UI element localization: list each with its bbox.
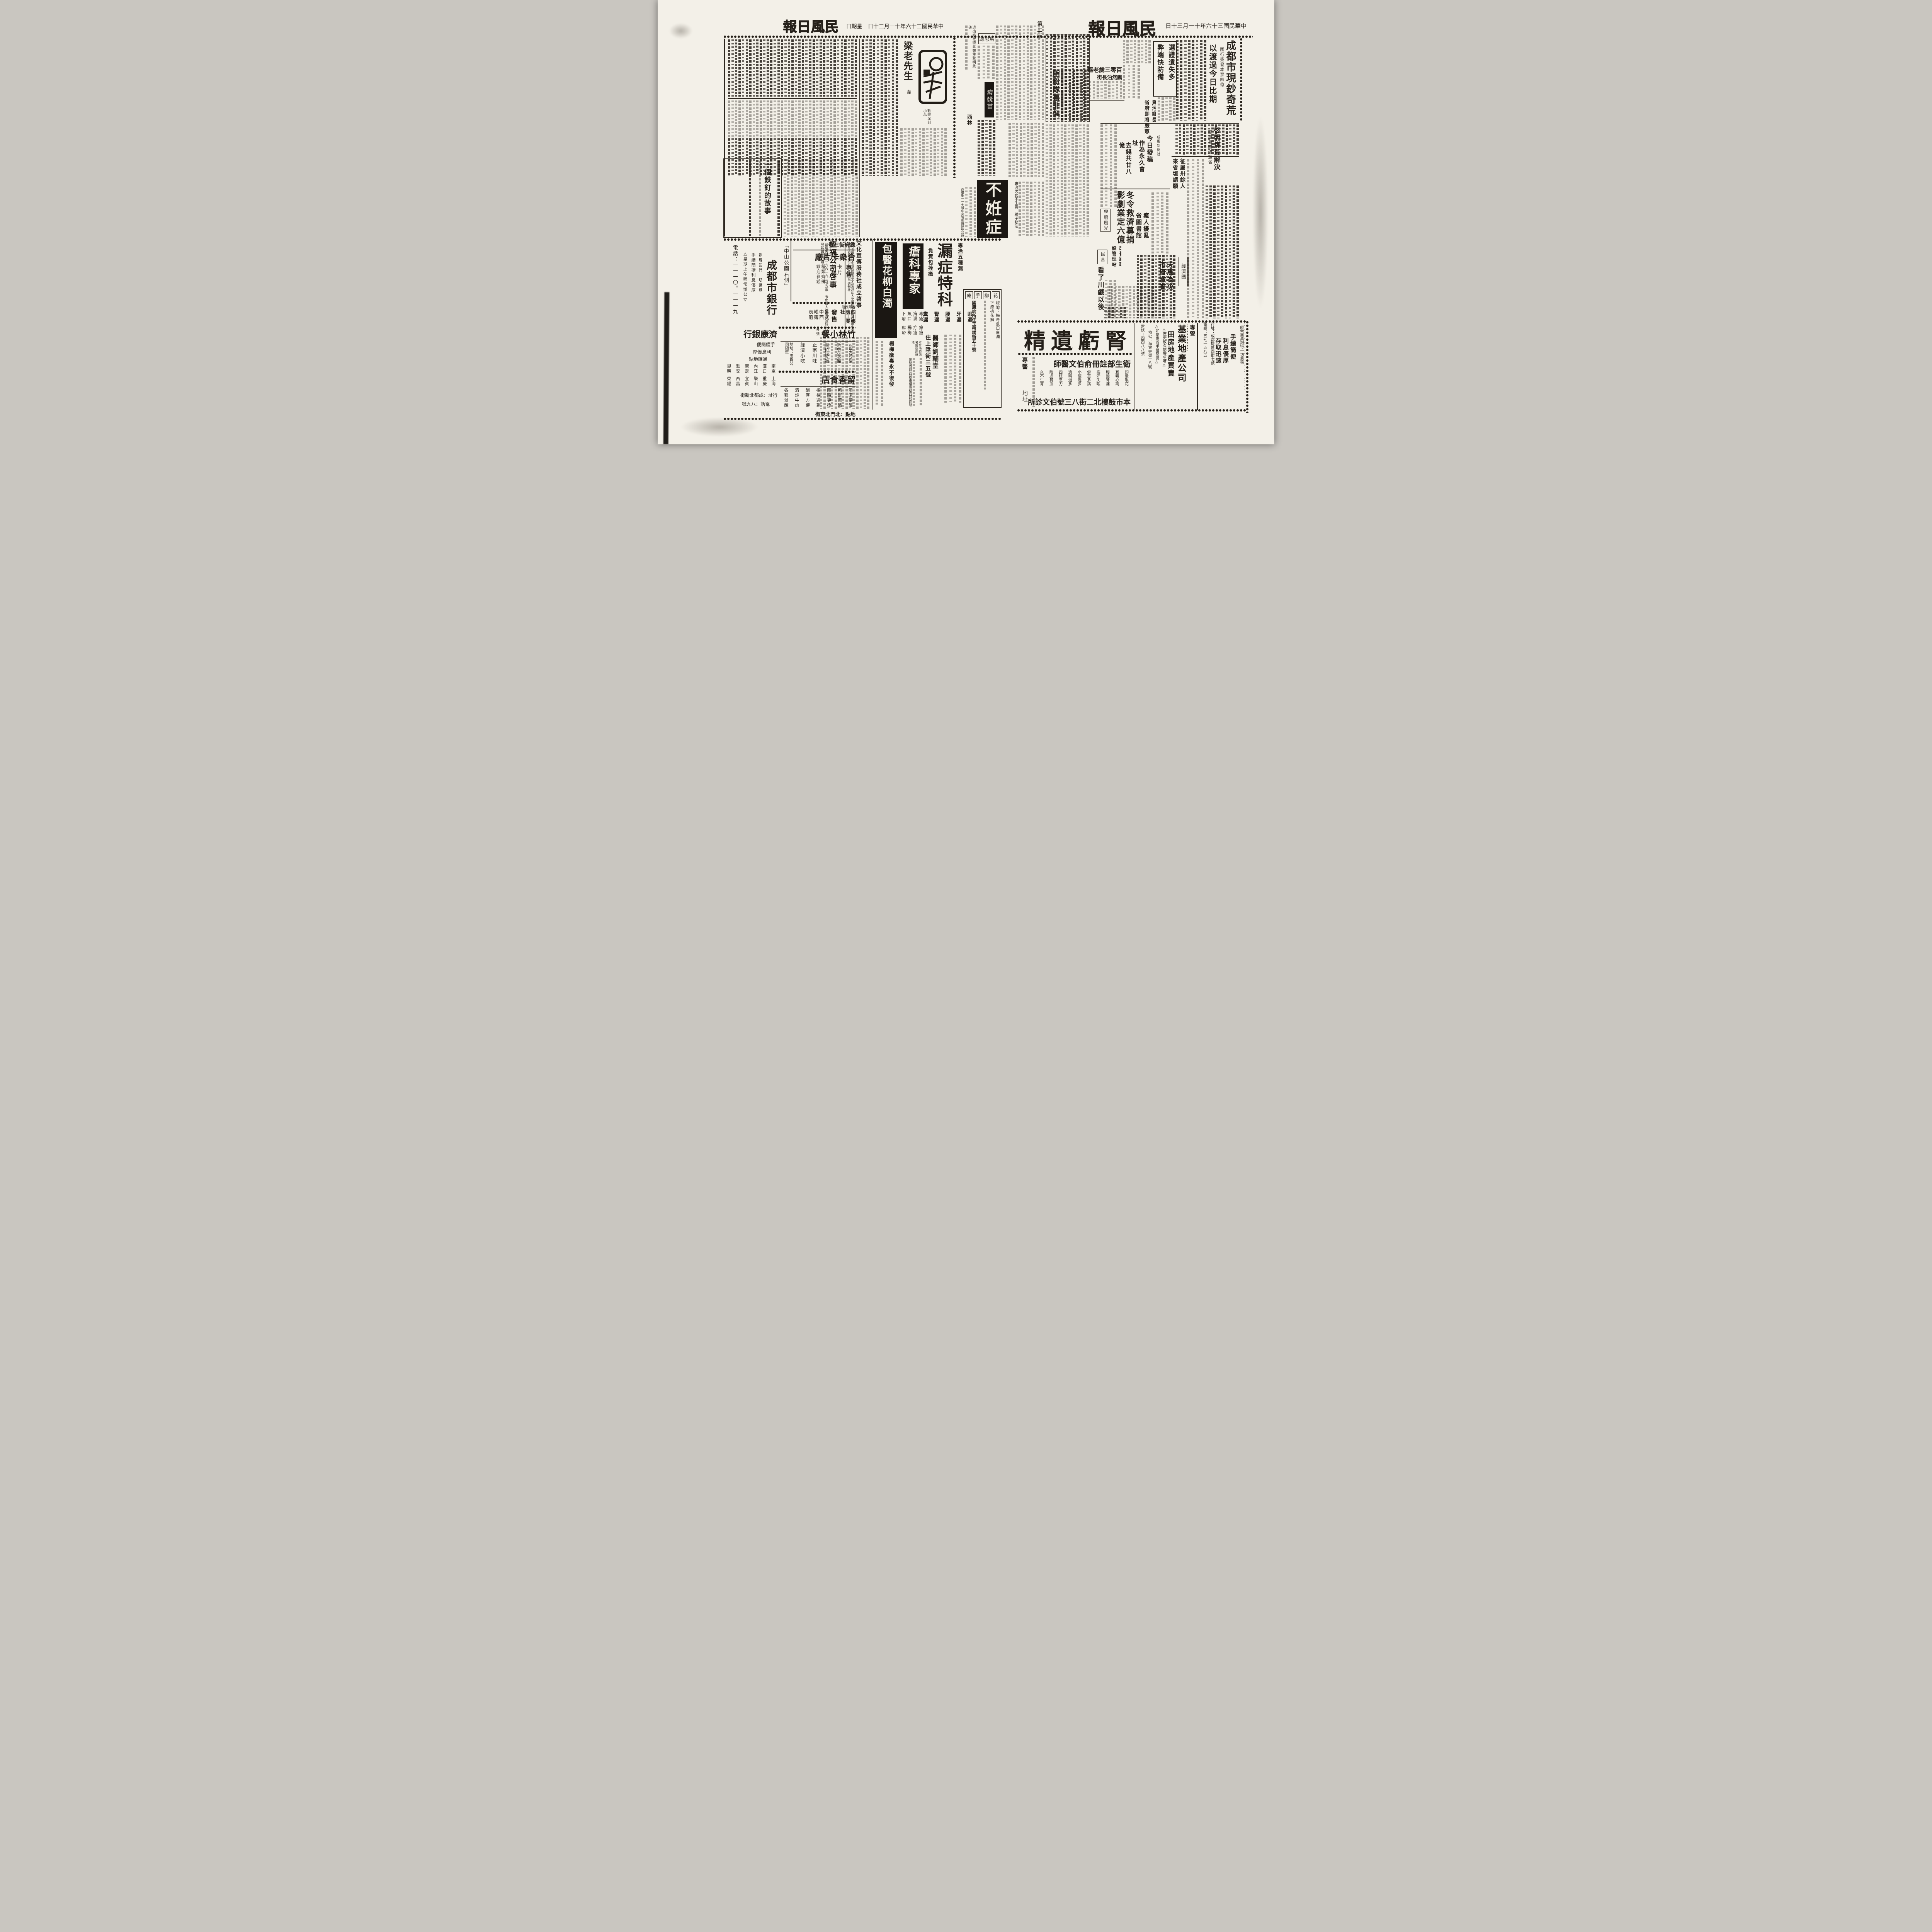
story2-title: 一個鉄釘的故事: [763, 161, 771, 233]
scan-smudge: [669, 23, 692, 39]
illegible-text: [775, 161, 780, 236]
press-headline: 成風新聞社 今日發稿: [1145, 135, 1160, 168]
jiye-ad: 專營 基業地產公司 田房地產買賣 △歷史攸久信譽卓著△ △如蒙賜辦手續簡便△ 地…: [1137, 325, 1196, 410]
woodcut-illustration: [918, 49, 947, 104]
illegible-text: [978, 46, 995, 80]
corrupt-line2: 省府即將嚴懲: [1143, 100, 1149, 140]
column-rule: [728, 98, 857, 99]
jiye-name: 基業地產公司: [1176, 325, 1186, 410]
illegible-text: [876, 341, 883, 406]
press-kicker: 成風新聞社: [1156, 135, 1160, 161]
madman-line2: 省圖書館: [1135, 213, 1142, 245]
infertility-note: 專治男女不生育 種子秘法: [1009, 182, 1018, 237]
economy-column-box: 經濟圈: [1178, 257, 1189, 286]
kidney-left2: 地址: [1020, 390, 1028, 407]
lou-title: 漏症特科: [935, 243, 952, 310]
lead-kicker: 國行簽發本票四億: [1219, 47, 1224, 116]
lixiang-ad: 留香食店 清潔便飯 新鮮菜餚 隨時更換 招待週到 酬客方便 清炖牛肉 各種滷醃 …: [781, 373, 855, 417]
illegible-text: [1158, 97, 1175, 122]
lead-title: 成都市現鈔奇荒: [1224, 40, 1236, 121]
illegible-text: [728, 100, 857, 137]
ticket-box: 選證遺失多 弊端快防備: [1153, 41, 1177, 97]
illegible-text: [944, 335, 961, 403]
ticket-line1: 選證遺失多: [1167, 44, 1175, 94]
illegible-text: [784, 159, 858, 236]
jikang-cities: 南京上海 漢口重慶 內江樂山 康定宜賓 雅安西昌 昆明榮經: [724, 364, 777, 389]
column-rule-wavy: [953, 37, 956, 178]
madman-headline: 瘋人擾亂 省圖書館: [1134, 213, 1151, 245]
illegible-text: [1009, 123, 1044, 177]
supplement-title-box: 馬思聰: [978, 33, 995, 44]
market-quotes: [1104, 307, 1126, 318]
illegible-text: [1100, 124, 1117, 207]
rule: [872, 240, 872, 410]
lou-kicker: 專治五種漏: [956, 243, 962, 291]
rule: [1197, 323, 1198, 410]
page-fold-rule: [859, 39, 860, 237]
sore-ad-title: 瘡科專家: [903, 243, 923, 309]
roads-line2: 設管理站: [1111, 246, 1116, 277]
oldwoman-line1: 百零三歲老嫗: [1089, 66, 1122, 73]
campus-box: 學府風光: [1100, 209, 1111, 232]
coal-headline: 啓明煤荒解決 關鍵為購煤運省: [1205, 127, 1222, 184]
culture-title: 文化宣傳服務社成立啓事: [855, 240, 862, 333]
kidney-doctor: 衛生部註冊俞伯文醫師: [1044, 358, 1131, 368]
illegible-text: [1046, 124, 1089, 236]
citybank-phone: 電話：一一一〇。一一一九: [724, 245, 737, 325]
illegible-text: [1123, 65, 1140, 99]
statement-text: 退出該社特此鄭重聲明此啓: [968, 26, 976, 70]
lead-body: [1176, 40, 1206, 121]
citybank-note: △星期上午照常辦公▽: [739, 251, 747, 321]
illegible-text: [724, 161, 751, 236]
illegible-text: [996, 26, 1044, 120]
rule: [792, 301, 855, 304]
story2-block: 一個鉄釘的故事: [723, 158, 782, 238]
illegible-text: [728, 39, 857, 97]
story1-author: 韋: [904, 90, 911, 100]
weekday: 星期日: [846, 24, 862, 30]
bottom-border: [723, 417, 1002, 420]
oldwoman-line2: 飄然泊長街: [1094, 73, 1122, 80]
scanner-streak: [663, 292, 670, 444]
kidney-ad-border-mid: [1018, 352, 1132, 355]
story-body: [900, 128, 947, 176]
jiye-main: 田房地產買賣: [1166, 331, 1174, 405]
corrupt-headline: 貪污鄉長 省府即將嚴懲: [1141, 100, 1156, 140]
masthead-right-title: 民風日報: [1098, 15, 1156, 38]
coal-title: 啓明煤荒解決: [1212, 127, 1220, 184]
sore-footer-address: 地點春熙西段茶樓隔壁四能診所: [901, 358, 912, 406]
council-line2: 作為永久會址: [1132, 140, 1145, 178]
minyan-title: 看了川戲以後: [1092, 267, 1104, 318]
illegible-text: [1089, 81, 1122, 99]
lead-headline: 成都市現鈔奇荒 國行簽發本票四億 以渡過今日比期: [1208, 40, 1239, 121]
council-line3: 去錢共廿八億: [1118, 142, 1132, 178]
kidney-ad-title: 腎虧遺精: [1019, 324, 1132, 352]
infertility-ad-title: 不姙症: [977, 180, 1008, 238]
winter-line2: 影劇業定六億: [1116, 191, 1125, 253]
liuzhuo-ad-title: 包醫花柳白濁: [875, 242, 897, 338]
lead-subtitle: 以渡過今日比期: [1208, 44, 1217, 118]
jiye-kicker: 專營: [1187, 325, 1195, 350]
coal-subtitle: 關鍵為購煤運省: [1207, 130, 1212, 182]
economy-headline: 天馬為災 市府澈查: [1158, 261, 1176, 314]
illegible-text: [978, 120, 995, 176]
roads-line1: 改善路政: [1118, 246, 1121, 277]
roads-headline: 改善路政 設管理站: [1109, 246, 1121, 277]
council-headline: 省參會買沙利文 作為永久會址 去錢共廿八億: [1118, 138, 1145, 181]
citybank-location: 「中山公園右側」: [778, 243, 788, 302]
kidney-symptoms: 頭暈眼花 耳鳴心跳 腰酸背痛 盜汗失眠 健忘多病 小便過多 遺精過多 四肢乏力 …: [1036, 370, 1131, 394]
kidney-left1: 專醫: [1020, 357, 1028, 377]
masthead-left-title: 民風日報: [801, 15, 838, 37]
illegible-text: [913, 358, 922, 406]
illegible-text: [1187, 159, 1204, 318]
rule: [1100, 123, 1239, 124]
vaccine-title: 痘漿苗: [985, 82, 994, 117]
rule: [1134, 323, 1134, 410]
sore-note: 本診所特聘名醫採用新法: [902, 341, 922, 356]
madman-line1: 瘋人擾亂: [1143, 213, 1149, 245]
lou-pledge: 負責包拴癒: [927, 248, 932, 299]
petition-line2: 來省垣請願: [1172, 158, 1178, 210]
illegible-text: [1061, 70, 1087, 121]
minyan-column-box: 民言: [1097, 250, 1107, 264]
kidney-address: 本市鼓樓北二街八三號伯文診所: [1031, 396, 1131, 407]
illegible-text: [1151, 192, 1168, 253]
press-title: 今日發稿: [1146, 135, 1153, 168]
citybank-services: 辦理銀行一切業務 手續簡捷利息優厚: [748, 253, 762, 318]
story1-caption: 歡迎深刻小品: [919, 109, 930, 125]
lou-doctor: 醫師劉輔堂 住上陞街三五號: [923, 335, 943, 403]
petition-line1: 征屬卅餘人: [1179, 158, 1185, 205]
illegible-text: [1123, 40, 1151, 63]
yukang-ad: 豫康銀行成都總行 經營商業銀行一切業務 手續簡便 利息優厚 存取迅速 行址：成都…: [1199, 322, 1245, 410]
illegible-text: [751, 161, 761, 236]
winter-line1: 冬令救濟募捐: [1125, 191, 1134, 253]
date-left: 中華民國三十六年十一月三十日: [868, 24, 944, 30]
winter-headline: 冬令救濟募捐 影劇業定六億: [1116, 191, 1137, 253]
ornament-rule: [1240, 38, 1243, 122]
economy-line1: 天馬為災: [1165, 261, 1173, 314]
illegible-text: [965, 187, 976, 237]
bamboo-ad: 竹林小餐 分號 （四大特色） 新型設備 座位舒適 正宗川味 經濟小吃 地址：國貨…: [781, 328, 855, 369]
jikang-ad: 濟康銀行 手續簡便 利息優厚 通匯地點 南京上海 漢口重慶 內江樂山 康定宜賓 …: [724, 328, 777, 416]
infertility-address: 西御街一一七號中央電影院隔壁診所: [957, 188, 964, 237]
statement-notice: 退出該社特此鄭重聲明此啓: [956, 26, 977, 70]
cardfactory-ad: 總府街三號 合衆卡片廠 專售 卡片 請帖 種類齊備 歡迎參觀: [793, 241, 855, 301]
rule: [778, 370, 855, 373]
newspaper-page-scan: 民風日報 中華民國三十六年十一月三十日 星期日 民風日報 中華民國三十六年十一月…: [658, 0, 1274, 444]
petition-headline: 鄉長扣優待米 征屬卅餘人 來省垣請願: [1171, 158, 1186, 210]
economy-line2: 市府澈查: [1158, 261, 1165, 314]
ads-border-bottom: [1017, 409, 1246, 412]
powder-title: 脂粉隊裏非偶: [1049, 70, 1060, 122]
ads-border-right: [1246, 321, 1249, 413]
illegible-text: [1019, 182, 1044, 237]
masthead-right-dateline: 中華民國三十六年十一月三十日: [1155, 22, 1247, 30]
story-body: [862, 39, 898, 176]
story1-title: 梁老先生: [900, 41, 913, 88]
yukang-name: 豫康銀行成都總行: [1243, 322, 1245, 410]
masthead-left-dateline: 中華民國三十六年十一月三十日 星期日: [851, 22, 944, 31]
xilin-title: 西林: [964, 114, 971, 128]
illegible-text: [1206, 185, 1239, 318]
ticket-line2: 弊端快防備: [1156, 44, 1163, 94]
liuzhuo-footer: 楊梅瘡毒永不復發: [884, 341, 893, 406]
guokang-ad: 花 柳 手 療 經治：梅毒魚口白濁 下疳桃花癬 國康診所住玉帶橋街五十號: [963, 289, 1002, 408]
accountbooks-ad: 春熙西段 四川帳表工業社 發售 各式中西 帳簿表册: [793, 304, 855, 325]
rule: [1088, 100, 1124, 101]
rule: [791, 241, 791, 301]
scan-smudge: [1253, 116, 1268, 309]
